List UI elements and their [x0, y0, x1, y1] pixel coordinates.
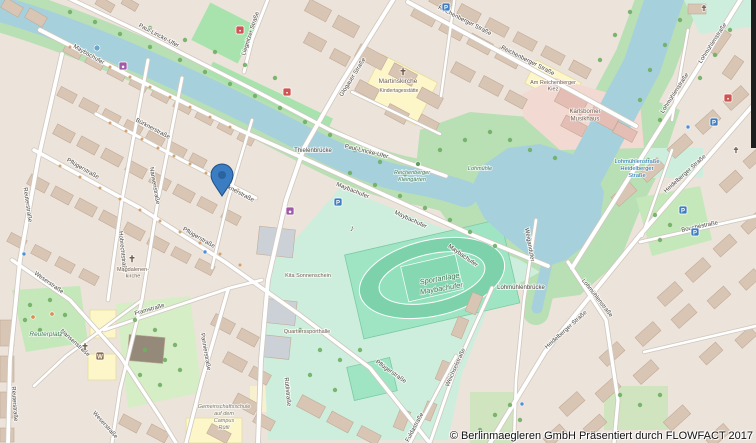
fountain-icon [94, 45, 100, 51]
place-label: Am Reichenberger [530, 80, 576, 86]
place-label: Musikhaus [571, 117, 600, 123]
amenity-icon: ▪ [283, 88, 291, 96]
bus-stop-icon [686, 125, 690, 129]
place-label: Reichenberger [394, 170, 431, 176]
svg-text:✝: ✝ [701, 4, 708, 13]
svg-text:P: P [712, 120, 716, 126]
svg-text:✝: ✝ [81, 342, 89, 352]
shop-icon: ● [119, 62, 127, 70]
place-label: Magdalenen- [117, 267, 149, 273]
map-attribution: © Berlinmaegleren GmbH Präsentiert durch… [450, 430, 753, 442]
svg-text:P: P [444, 5, 448, 11]
playground-icon [50, 312, 54, 316]
church-icon: ✝ [81, 342, 89, 352]
svg-text:P: P [693, 230, 697, 236]
svg-text:▪: ▪ [286, 90, 288, 96]
place-label: Gemeinschaftsschule [198, 404, 251, 410]
parking-icon: P [710, 118, 718, 126]
place-label: Lohmühle [468, 166, 492, 172]
place-label: Karlsborner [569, 109, 600, 115]
place-label: Campus [214, 418, 235, 424]
church-icon: ✝ [733, 146, 740, 155]
svg-text:▪: ▪ [727, 96, 729, 102]
svg-text:▪: ▪ [239, 28, 241, 34]
music-venue-icon: ♪ [350, 223, 355, 233]
place-label: auf dem [214, 411, 234, 417]
parking-icon: P [679, 206, 687, 214]
church-icon: ✝ [128, 254, 136, 264]
landmark-icon: W [96, 352, 104, 360]
bus-stop-icon [203, 250, 207, 254]
place-label: Rütli [218, 425, 230, 431]
street-label: Lohmühlenbrücke [497, 285, 545, 291]
svg-text:♪: ♪ [350, 223, 355, 233]
playground-icon [31, 315, 35, 319]
amenity-icon: ▪ [724, 94, 732, 102]
map-tiles[interactable]: MaybachuferMaybachuferMaybachuferMaybach… [0, 0, 756, 443]
parking-icon: P [691, 228, 699, 236]
bus-stop-icon [520, 402, 524, 406]
map-canvas[interactable]: MaybachuferMaybachuferMaybachuferMaybach… [0, 0, 756, 443]
bus-stop-icon [22, 252, 26, 256]
place-label: Lohmühlenstraße [614, 159, 659, 165]
church-icon: ✝ [399, 67, 407, 77]
place-label: Kita Sonnenschein [285, 273, 331, 279]
parking-icon: P [442, 3, 450, 11]
place-label: Kindertagesstätte [380, 88, 419, 94]
window-edge [751, 0, 756, 148]
svg-text:P: P [336, 200, 340, 206]
place-label: Straße [628, 173, 645, 179]
church-icon: ✝ [701, 4, 708, 13]
svg-text:P: P [681, 208, 685, 214]
svg-text:✝: ✝ [399, 67, 407, 77]
shop-icon: ● [286, 207, 294, 215]
parking-icon: P [334, 198, 342, 206]
svg-text:✝: ✝ [733, 146, 740, 155]
place-label: Martinskirche [379, 78, 418, 85]
place-label: Heidelberger [620, 166, 653, 172]
svg-text:●: ● [288, 209, 292, 215]
svg-text:●: ● [121, 64, 125, 70]
svg-text:W: W [97, 354, 103, 360]
place-label: Quartierssporthalle [284, 329, 330, 335]
place-label: kirche [126, 274, 141, 280]
garden-icon [416, 162, 421, 167]
place-label: Kiez [548, 87, 559, 93]
svg-text:✝: ✝ [128, 254, 136, 264]
amenity-icon: ▪ [236, 26, 244, 34]
place-label: Reuterplatz [29, 331, 63, 338]
place-label: Kleingärten [398, 177, 426, 183]
street-label: Thielenbrücke [294, 148, 332, 154]
